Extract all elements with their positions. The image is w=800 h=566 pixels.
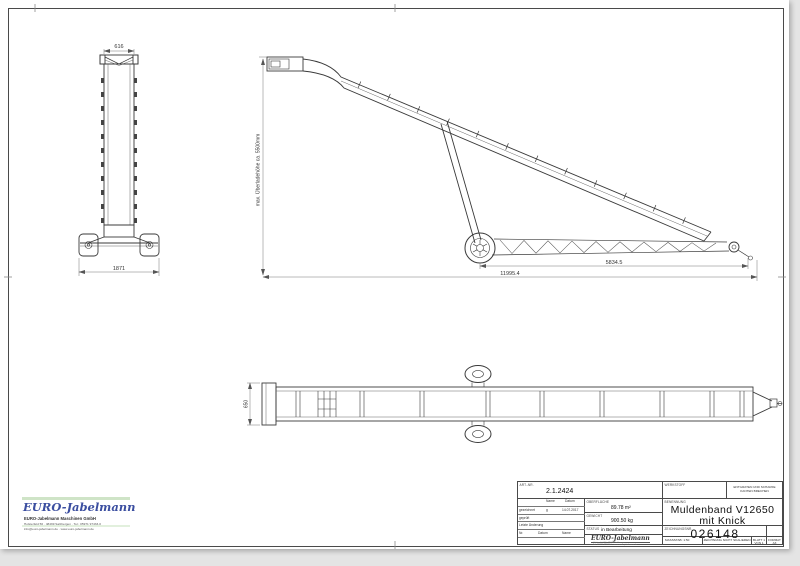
surface-label: OBERFLÄCHE bbox=[587, 500, 610, 504]
status-cell: STATUS in Bearbeitung bbox=[585, 526, 663, 535]
top-ladder-detail bbox=[318, 391, 336, 417]
revision-cell bbox=[767, 526, 782, 537]
scale-cell: MASSSTAB: 1:50 bbox=[663, 537, 703, 544]
benennung-cell: BENENNUNG Muldenband V12650 mit Knick bbox=[663, 499, 782, 526]
werkstoff-label: WERKSTOFF bbox=[665, 483, 686, 487]
art-nr-value: 2.1.2424 bbox=[546, 488, 573, 495]
drawing-sheet: 616 1871 bbox=[0, 0, 789, 549]
surface-cell: OBERFLÄCHE 89.78 m² bbox=[585, 499, 663, 513]
weight-label: GEWICHT bbox=[587, 514, 603, 518]
surface-value: 89.78 m² bbox=[611, 505, 631, 511]
front-view bbox=[79, 55, 159, 256]
dim-side-partial: 5834.5 bbox=[606, 260, 623, 266]
tb-logo-cell: EURO-Jabelmann Holsterfeld 56, 48499 Sal… bbox=[585, 535, 663, 544]
rev-col-datum: Datum bbox=[565, 499, 575, 503]
top-cross-members bbox=[296, 391, 744, 417]
side-view bbox=[267, 57, 753, 263]
werkstoff-cell: WERKSTOFF bbox=[663, 482, 727, 499]
dim-side-height: max. Überladehöhe ca. 5500mm bbox=[255, 134, 262, 207]
deburr-note-line2: KANTEN BRECHEN bbox=[727, 490, 782, 494]
screenshot-stage: 616 1871 bbox=[0, 0, 800, 566]
drawn-label: gezeichnet bbox=[519, 508, 535, 512]
weight-cell: GEWICHT 900.50 kg bbox=[585, 513, 663, 526]
last-change-label: Letzte Änderung bbox=[519, 523, 543, 527]
deburr-note-cell: ENTGRATEN UND SCHARFE KANTEN BRECHEN bbox=[727, 482, 782, 499]
art-nr-cell: ART.-NR. 2.1.2424 bbox=[518, 482, 663, 499]
cad-drawing: 616 1871 bbox=[0, 0, 789, 549]
drawn-name: g bbox=[546, 508, 548, 512]
no-scale-cell: ZEICHNUNG NICHT SKALIEREN bbox=[703, 537, 752, 544]
dim-side-length: 11995.4 bbox=[500, 271, 519, 277]
side-view-dimensions bbox=[259, 57, 757, 281]
drawn-date: 14.07.2017 bbox=[562, 508, 579, 512]
revision-table: Name Datum gezeichnet g 14.07.2017 geprü… bbox=[518, 499, 585, 544]
title-block: ART.-NR. 2.1.2424 Name Datum gezeichnet … bbox=[517, 481, 783, 545]
border-ticks bbox=[4, 4, 786, 549]
company-name: EURO-Jabelmann Maschinen GmbH bbox=[24, 516, 96, 521]
dim-top-belt-width: 650 bbox=[244, 400, 250, 409]
company-contact-line: info@euro-jabelmann.de · www.euro-jabelm… bbox=[24, 527, 94, 531]
weight-value: 900.50 kg bbox=[611, 518, 633, 524]
rev-col-name: Name bbox=[546, 499, 555, 503]
dim-front-width: 616 bbox=[114, 44, 123, 50]
company-address-line: Holsterfeld 56 · 48499 Salzbergen · Tel.… bbox=[24, 522, 101, 526]
top-view bbox=[262, 366, 782, 443]
rev-col-name2: Name bbox=[562, 531, 571, 535]
euro-jabelmann-logo: EURO-Jabelmann bbox=[23, 500, 136, 514]
status-label: STATUS bbox=[587, 527, 600, 531]
sheet-cell: BLATT 1 VON 1 bbox=[752, 537, 767, 544]
art-nr-label: ART.-NR. bbox=[520, 483, 534, 487]
format-value: FORMAT A3 bbox=[768, 538, 781, 545]
dim-front-track: 1871 bbox=[113, 266, 125, 272]
drawing-number-cell: ZEICHNUNGSNR. 026148 bbox=[663, 526, 767, 537]
no-scale-note: ZEICHNUNG NICHT SKALIEREN bbox=[704, 538, 751, 542]
rev-col-nr: Nr. bbox=[519, 531, 523, 535]
sheet-number: BLATT 1 VON 1 bbox=[753, 538, 765, 545]
checked-label: geprüft bbox=[519, 516, 529, 520]
format-cell: FORMAT A3 bbox=[767, 537, 782, 544]
rev-col-datum2: Datum bbox=[538, 531, 548, 535]
tb-logo-addr2: Tel. 05971 97433-0 · www.euro-jabelmann.… bbox=[593, 544, 637, 546]
status-value: in Bearbeitung bbox=[601, 528, 632, 533]
scale-value: MASSSTAB: 1:50 bbox=[665, 538, 689, 542]
